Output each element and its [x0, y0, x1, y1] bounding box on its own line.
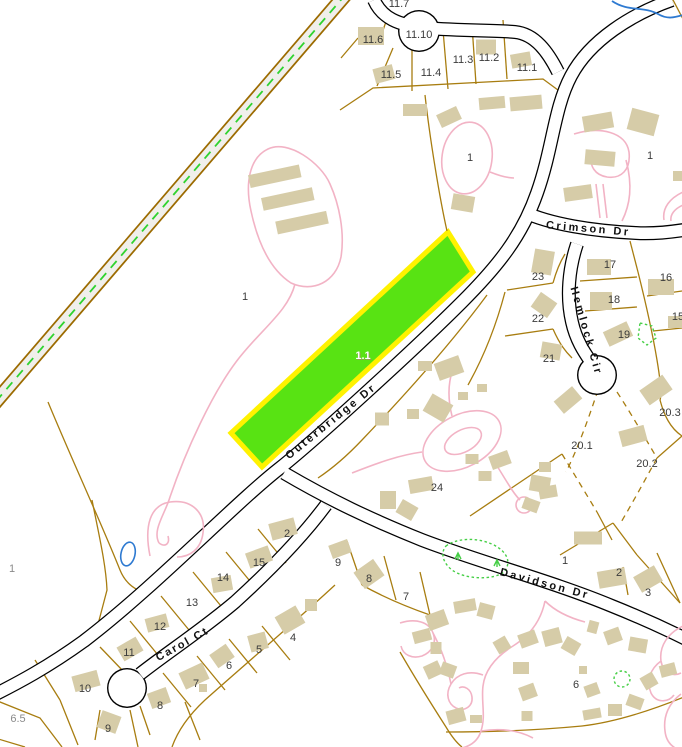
parcel-label: 15	[672, 311, 682, 323]
parcel-label: 10	[79, 683, 91, 695]
highlight-parcel-label: 1.1	[355, 350, 370, 362]
parcel-label: 7	[193, 678, 199, 690]
parcel-label: 7	[403, 591, 409, 603]
parcel-label: 8	[157, 700, 163, 712]
parcel-label: 11.10	[406, 29, 433, 41]
parcel-label: 9	[105, 723, 111, 735]
parcel-label: 4	[290, 632, 296, 644]
parcel-label: 1	[242, 291, 248, 303]
parcel-label: 21	[543, 353, 555, 365]
parcel-label: 2	[284, 528, 290, 540]
parcel-label: 24	[431, 482, 443, 494]
parcel-label: 20.3	[659, 407, 680, 419]
parcel-label: 11.5	[381, 69, 402, 81]
parcel-label: 11.7	[389, 0, 410, 10]
parcel-label: 16	[660, 272, 672, 284]
parcel-label: 19	[618, 329, 630, 341]
parcel-label: 15	[253, 557, 265, 569]
parcel-label-gray: 1	[9, 563, 15, 575]
parcel-label: 9	[335, 557, 341, 569]
map-viewport[interactable]: 11.711.611.1011.511.411.311.211.11123171…	[0, 0, 682, 747]
parcel-label: 3	[645, 587, 651, 599]
parcel-label: 20.2	[636, 458, 657, 470]
parcel-label: 13	[186, 597, 198, 609]
parcel-label: 11.3	[453, 54, 474, 66]
parcel-label: 6	[573, 679, 579, 691]
parcel-label: 11.4	[421, 67, 442, 79]
parcel-label: 1	[647, 150, 653, 162]
parcel-label: 8	[366, 573, 372, 585]
road-name-label: Davidson Dr	[499, 566, 591, 601]
map-canvas[interactable]: 11.711.611.1011.511.411.311.211.11123171…	[0, 0, 682, 747]
parcel-label: 6	[226, 660, 232, 672]
parcel-label: 11.1	[517, 62, 538, 74]
parcel-label: 1	[562, 555, 568, 567]
parcel-label: 18	[608, 294, 620, 306]
parcel-label: 11.2	[479, 52, 500, 64]
parcel-label: 5	[256, 644, 262, 656]
parcel-label: 11	[123, 647, 134, 659]
parcel-label: 17	[604, 259, 616, 271]
highlighted-parcel[interactable]	[231, 232, 473, 467]
parcel-label: 23	[532, 271, 544, 283]
parcel-label: 12	[154, 621, 166, 633]
parcel-label: 11.6	[363, 34, 384, 46]
parcel-label: 1	[467, 152, 473, 164]
parcel-label-gray: 6.5	[10, 713, 25, 725]
parcel-label: 22	[532, 313, 544, 325]
parcel-label: 2	[616, 567, 622, 579]
parcel-label: 20.1	[571, 440, 592, 452]
parcel-label: 14	[217, 572, 229, 584]
